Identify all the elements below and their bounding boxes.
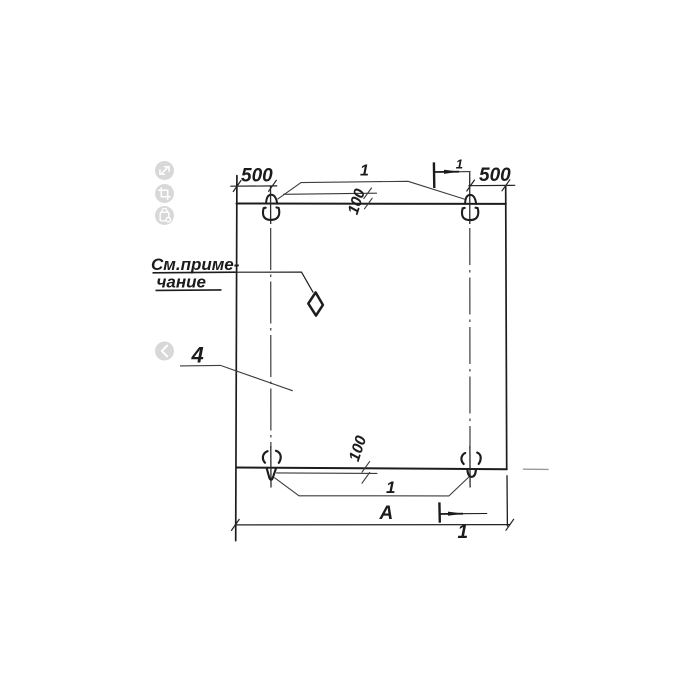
svg-text:100: 100 bbox=[346, 433, 370, 463]
svg-text:См.приме-: См.приме- bbox=[151, 255, 240, 274]
svg-text:1: 1 bbox=[456, 157, 463, 172]
svg-text:500: 500 bbox=[241, 166, 273, 187]
svg-text:чание: чание bbox=[157, 273, 206, 292]
svg-text:500: 500 bbox=[479, 165, 511, 186]
svg-text:А: А bbox=[379, 503, 394, 524]
svg-text:1: 1 bbox=[386, 478, 395, 497]
svg-text:100: 100 bbox=[345, 187, 369, 217]
svg-text:1: 1 bbox=[360, 163, 369, 180]
svg-text:1: 1 bbox=[458, 522, 469, 543]
svg-text:4: 4 bbox=[191, 343, 204, 368]
